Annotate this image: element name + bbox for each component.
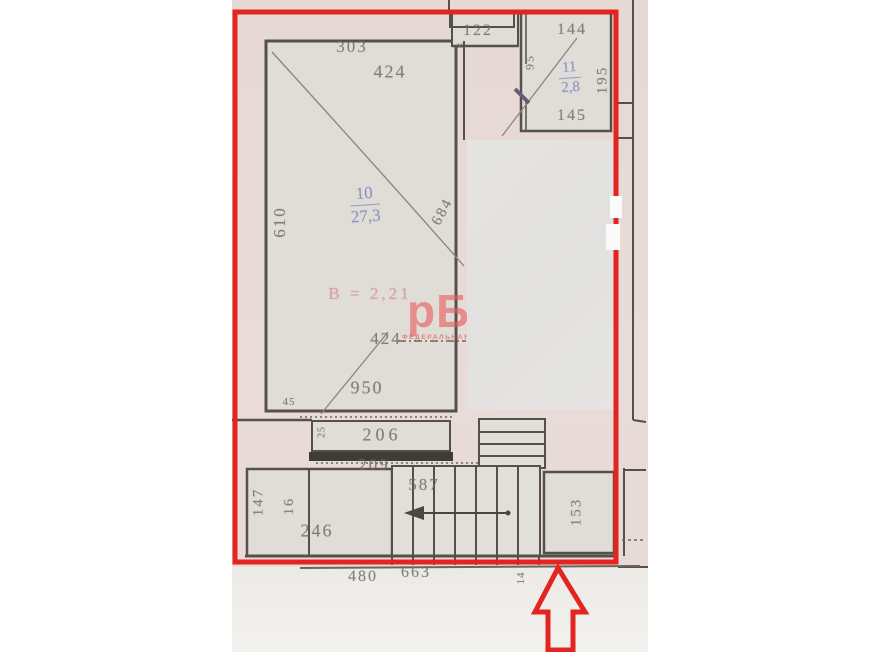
overlay-notch xyxy=(610,196,622,218)
dim-label-145: 145 xyxy=(557,107,587,125)
dim-label-663: 663 xyxy=(401,564,431,582)
dim-label-95: 95 xyxy=(523,54,538,70)
dim-label-147: 147 xyxy=(251,488,268,517)
dim-label-303: 303 xyxy=(336,37,368,57)
dim-label-14: 14 xyxy=(515,572,527,585)
ceiling-height-note: В = 2,21 xyxy=(328,284,411,304)
dim-label-610: 610 xyxy=(270,206,290,238)
dim-label-144: 144 xyxy=(557,21,587,39)
dim-label-122: 122 xyxy=(463,22,493,40)
dim-label-209: 209 xyxy=(358,455,390,475)
dim-label-587: 587 xyxy=(408,475,440,495)
room-10-number: 10 xyxy=(349,183,380,207)
redaction-overlay xyxy=(467,140,618,410)
dim-label-195: 195 xyxy=(595,66,612,95)
dim-label-480: 480 xyxy=(348,568,378,586)
room-11-number-area: 11 2,8 xyxy=(558,59,583,97)
tiny-m-label: м xyxy=(457,40,463,50)
dim-label-424-top: 424 xyxy=(374,62,407,83)
dim-label-153: 153 xyxy=(569,498,586,527)
dim-label-206: 206 xyxy=(363,425,402,446)
dim-label-246: 246 xyxy=(301,521,334,542)
room-11-number: 11 xyxy=(558,59,582,80)
overlay-notch xyxy=(606,224,620,250)
dim-label-424-mid: 424 xyxy=(370,329,402,349)
room-246 xyxy=(247,469,392,556)
dim-label-950: 950 xyxy=(351,378,384,399)
dim-label-25: 25 xyxy=(317,426,328,438)
room-10-area: 27,3 xyxy=(350,204,381,227)
dim-label-16: 16 xyxy=(282,497,298,515)
room-10-number-area: 10 27,3 xyxy=(349,183,382,228)
room-11-area: 2,8 xyxy=(559,78,583,98)
dim-label-45: 45 xyxy=(283,396,296,408)
floorplan-photo: 303 424 122 м 144 145 11 2,8 195 95 610 … xyxy=(0,0,870,652)
